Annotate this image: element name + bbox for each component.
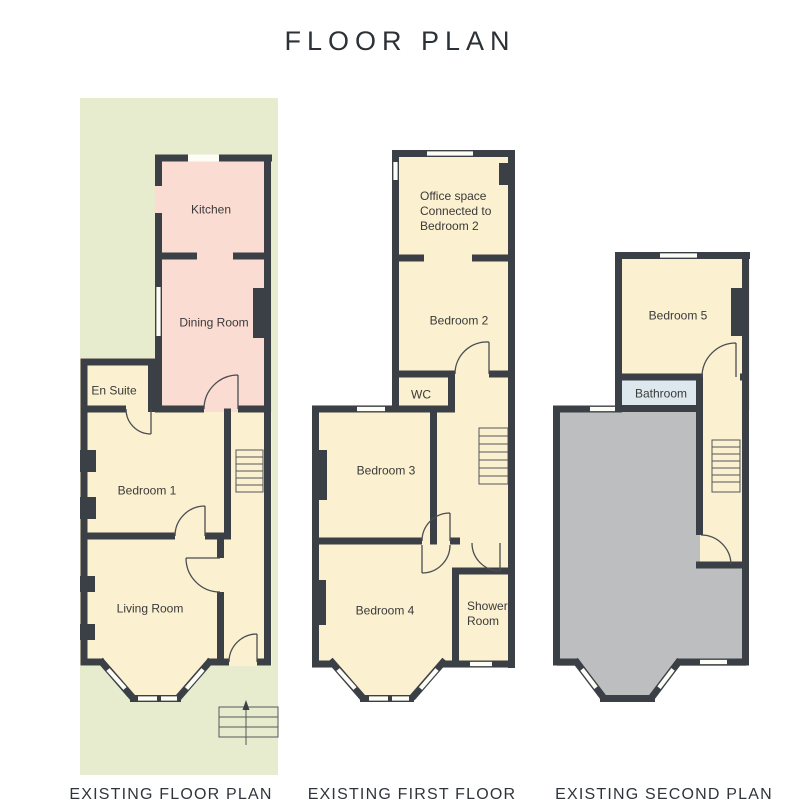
caption-existing-floor-plan: EXISTING FLOOR PLAN xyxy=(69,786,272,800)
kitchen-garden-door-opening xyxy=(188,155,219,162)
room-label-dining-room: Dining Room xyxy=(179,316,248,331)
room-label-en-suite: En Suite xyxy=(91,384,136,399)
room-label-kitchen: Kitchen xyxy=(191,203,231,218)
room-label-office-space: Office space Connected to Bedroom 2 xyxy=(420,189,491,234)
room-label-bedroom-3: Bedroom 3 xyxy=(357,464,416,479)
second-landing-floor xyxy=(696,374,746,568)
room-label-wc: WC xyxy=(411,388,431,403)
floor-plan-page: FLOOR PLAN xyxy=(0,0,800,800)
room-label-shower-room: Shower Room xyxy=(467,599,508,629)
room-label-bathroom: Bathroom xyxy=(635,387,687,402)
kitchen-dining-floor xyxy=(155,155,272,412)
caption-existing-second-plan: EXISTING SECOND PLAN xyxy=(555,786,773,800)
room-label-bedroom-5: Bedroom 5 xyxy=(649,309,708,324)
room-label-bedroom-1: Bedroom 1 xyxy=(118,484,177,499)
second-pier-blocks xyxy=(731,288,746,336)
room-label-living-room: Living Room xyxy=(117,602,184,617)
room-label-bedroom-4: Bedroom 4 xyxy=(356,604,415,619)
caption-existing-first-floor: EXISTING FIRST FLOOR xyxy=(308,786,517,800)
ground-floor-plan xyxy=(80,98,278,775)
room-label-bedroom-2: Bedroom 2 xyxy=(430,314,489,329)
